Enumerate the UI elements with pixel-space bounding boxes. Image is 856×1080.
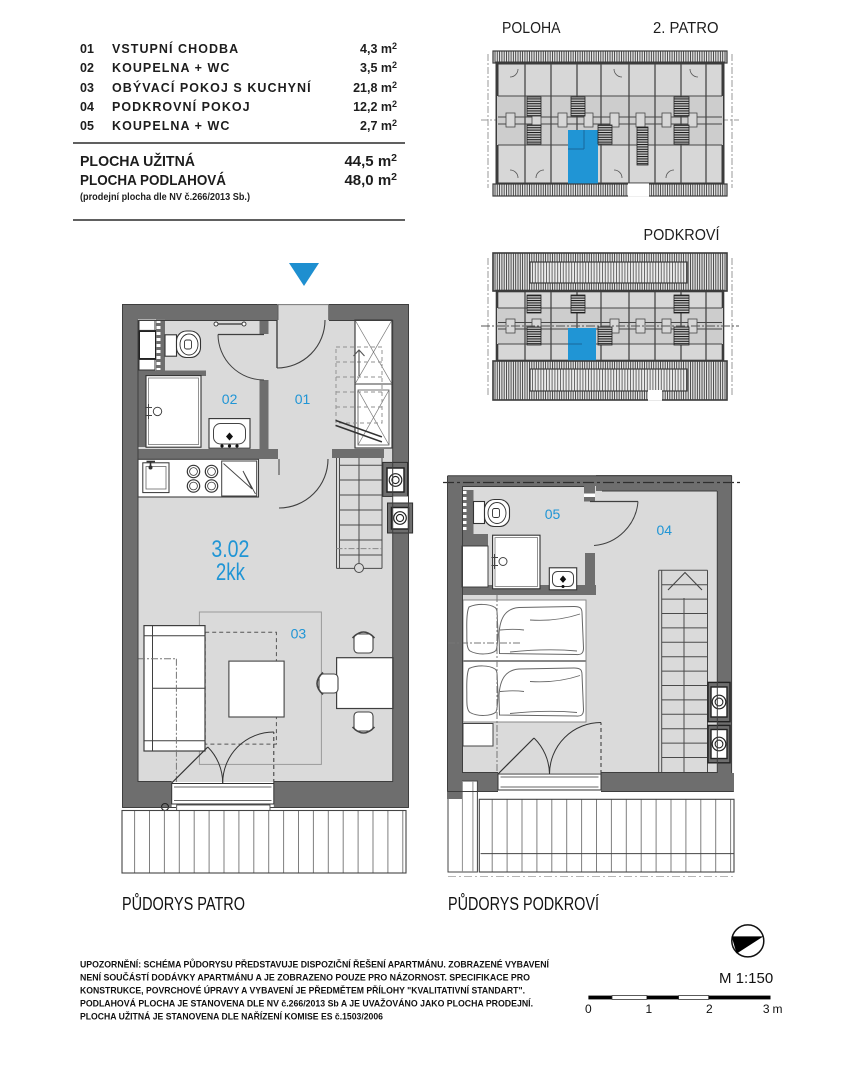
svg-text:VSTUPNÍ CHODBA: VSTUPNÍ CHODBA	[112, 41, 239, 56]
svg-text:05: 05	[80, 119, 94, 133]
svg-text:2kk: 2kk	[216, 559, 246, 586]
svg-text:12,2 m2: 12,2 m2	[353, 99, 397, 114]
svg-text:KOUPELNA + WC: KOUPELNA + WC	[112, 61, 230, 75]
svg-text:PLOCHA UŽITNÁ JE STANOVENA DLE: PLOCHA UŽITNÁ JE STANOVENA DLE NAŘÍZENÍ …	[80, 1011, 383, 1022]
svg-text:02: 02	[80, 61, 94, 75]
svg-text:44,5 m2: 44,5 m2	[344, 152, 397, 170]
svg-text:POLOHA: POLOHA	[502, 20, 561, 37]
svg-text:0: 0	[585, 1002, 592, 1016]
svg-text:m: m	[773, 1002, 783, 1016]
svg-text:NENÍ SOUČÁSTÍ DODÁVKY APARTMÁN: NENÍ SOUČÁSTÍ DODÁVKY APARTMÁNU A JE ZOB…	[80, 972, 530, 983]
svg-text:KOUPELNA + WC: KOUPELNA + WC	[112, 119, 230, 133]
svg-text:2: 2	[706, 1002, 713, 1016]
svg-text:2,7 m2: 2,7 m2	[360, 118, 397, 133]
svg-text:04: 04	[80, 100, 94, 114]
svg-text:1: 1	[646, 1002, 653, 1016]
svg-text:PODKROVÍ: PODKROVÍ	[644, 225, 720, 244]
svg-text:(prodejní plocha dle NV č.266/: (prodejní plocha dle NV č.266/2013 Sb.)	[80, 191, 250, 203]
svg-text:PLOCHA UŽITNÁ: PLOCHA UŽITNÁ	[80, 152, 195, 170]
svg-text:01: 01	[80, 42, 94, 56]
svg-text:21,8 m2: 21,8 m2	[353, 80, 397, 95]
svg-text:05: 05	[545, 506, 561, 522]
svg-text:M 1:150: M 1:150	[719, 970, 773, 987]
svg-text:03: 03	[80, 81, 94, 95]
svg-text:PŮDORYS PATRO: PŮDORYS PATRO	[122, 893, 245, 914]
svg-text:4,3 m2: 4,3 m2	[360, 41, 397, 56]
svg-text:2. PATRO: 2. PATRO	[653, 20, 719, 37]
svg-text:02: 02	[222, 391, 238, 407]
svg-text:PLOCHA PODLAHOVÁ: PLOCHA PODLAHOVÁ	[80, 172, 226, 189]
svg-text:PŮDORYS PODKROVÍ: PŮDORYS PODKROVÍ	[448, 893, 599, 914]
svg-text:PODKROVNÍ POKOJ: PODKROVNÍ POKOJ	[112, 99, 251, 114]
svg-text:3: 3	[763, 1002, 770, 1016]
svg-text:KONSTRUKCE, POVRCHOVÉ ÚPRAVY A: KONSTRUKCE, POVRCHOVÉ ÚPRAVY A VYBAVENÍ …	[80, 985, 525, 996]
svg-text:04: 04	[657, 522, 673, 538]
svg-text:UPOZORNĚNÍ: SCHÉMA PŮDORYSU PŘ: UPOZORNĚNÍ: SCHÉMA PŮDORYSU PŘEDSTAVUJE …	[80, 959, 549, 970]
svg-text:03: 03	[291, 626, 307, 642]
svg-text:OBÝVACÍ POKOJ S KUCHYNÍ: OBÝVACÍ POKOJ S KUCHYNÍ	[112, 80, 312, 95]
svg-text:48,0 m2: 48,0 m2	[344, 171, 397, 189]
svg-text:01: 01	[295, 391, 311, 407]
svg-text:PODLAHOVÁ PLOCHA JE STANOVENA: PODLAHOVÁ PLOCHA JE STANOVENA DLE NV č.2…	[80, 998, 533, 1009]
svg-text:3,5 m2: 3,5 m2	[360, 60, 397, 75]
